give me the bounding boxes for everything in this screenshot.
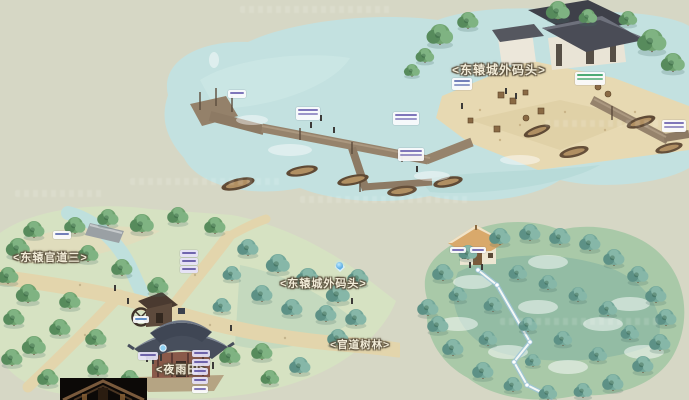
- npc-nameplate: [450, 247, 466, 253]
- npc-nameplate: [452, 78, 472, 90]
- watermark: [130, 178, 280, 185]
- npc-nameplate: [53, 231, 71, 239]
- map-composite: <东辕城外码头> <东辕城外码头> <东辕官道三> <官道树林> <夜雨田>: [0, 0, 689, 400]
- watermark: [300, 196, 470, 203]
- harbor-map: [0, 0, 689, 208]
- forest-map: [398, 212, 689, 400]
- npc-nameplate: [192, 368, 208, 375]
- npc-nameplate: [133, 316, 149, 323]
- watermark: [240, 6, 390, 13]
- npc-nameplate: [192, 359, 210, 366]
- watermark: [15, 190, 105, 197]
- npc-nameplate: [470, 247, 486, 253]
- npc-nameplate: [180, 250, 198, 257]
- interior-inset: [60, 378, 147, 400]
- npc-nameplate: [192, 386, 208, 393]
- npc-nameplate: [180, 266, 198, 273]
- watermark: [545, 120, 675, 127]
- watermark: [500, 318, 660, 325]
- npc-nameplate: [192, 350, 210, 357]
- npc-nameplate: [662, 120, 686, 132]
- npc-nameplate: [180, 258, 198, 265]
- npc-nameplate: [398, 148, 424, 161]
- npc-nameplate: [138, 352, 158, 360]
- npc-nameplate: [192, 377, 208, 384]
- npc-nameplate: [296, 107, 320, 120]
- npc-nameplate: [393, 112, 419, 125]
- npc-nameplate: [575, 72, 605, 85]
- waypoint-glow-icon: [336, 262, 343, 269]
- npc-nameplate: [228, 90, 246, 98]
